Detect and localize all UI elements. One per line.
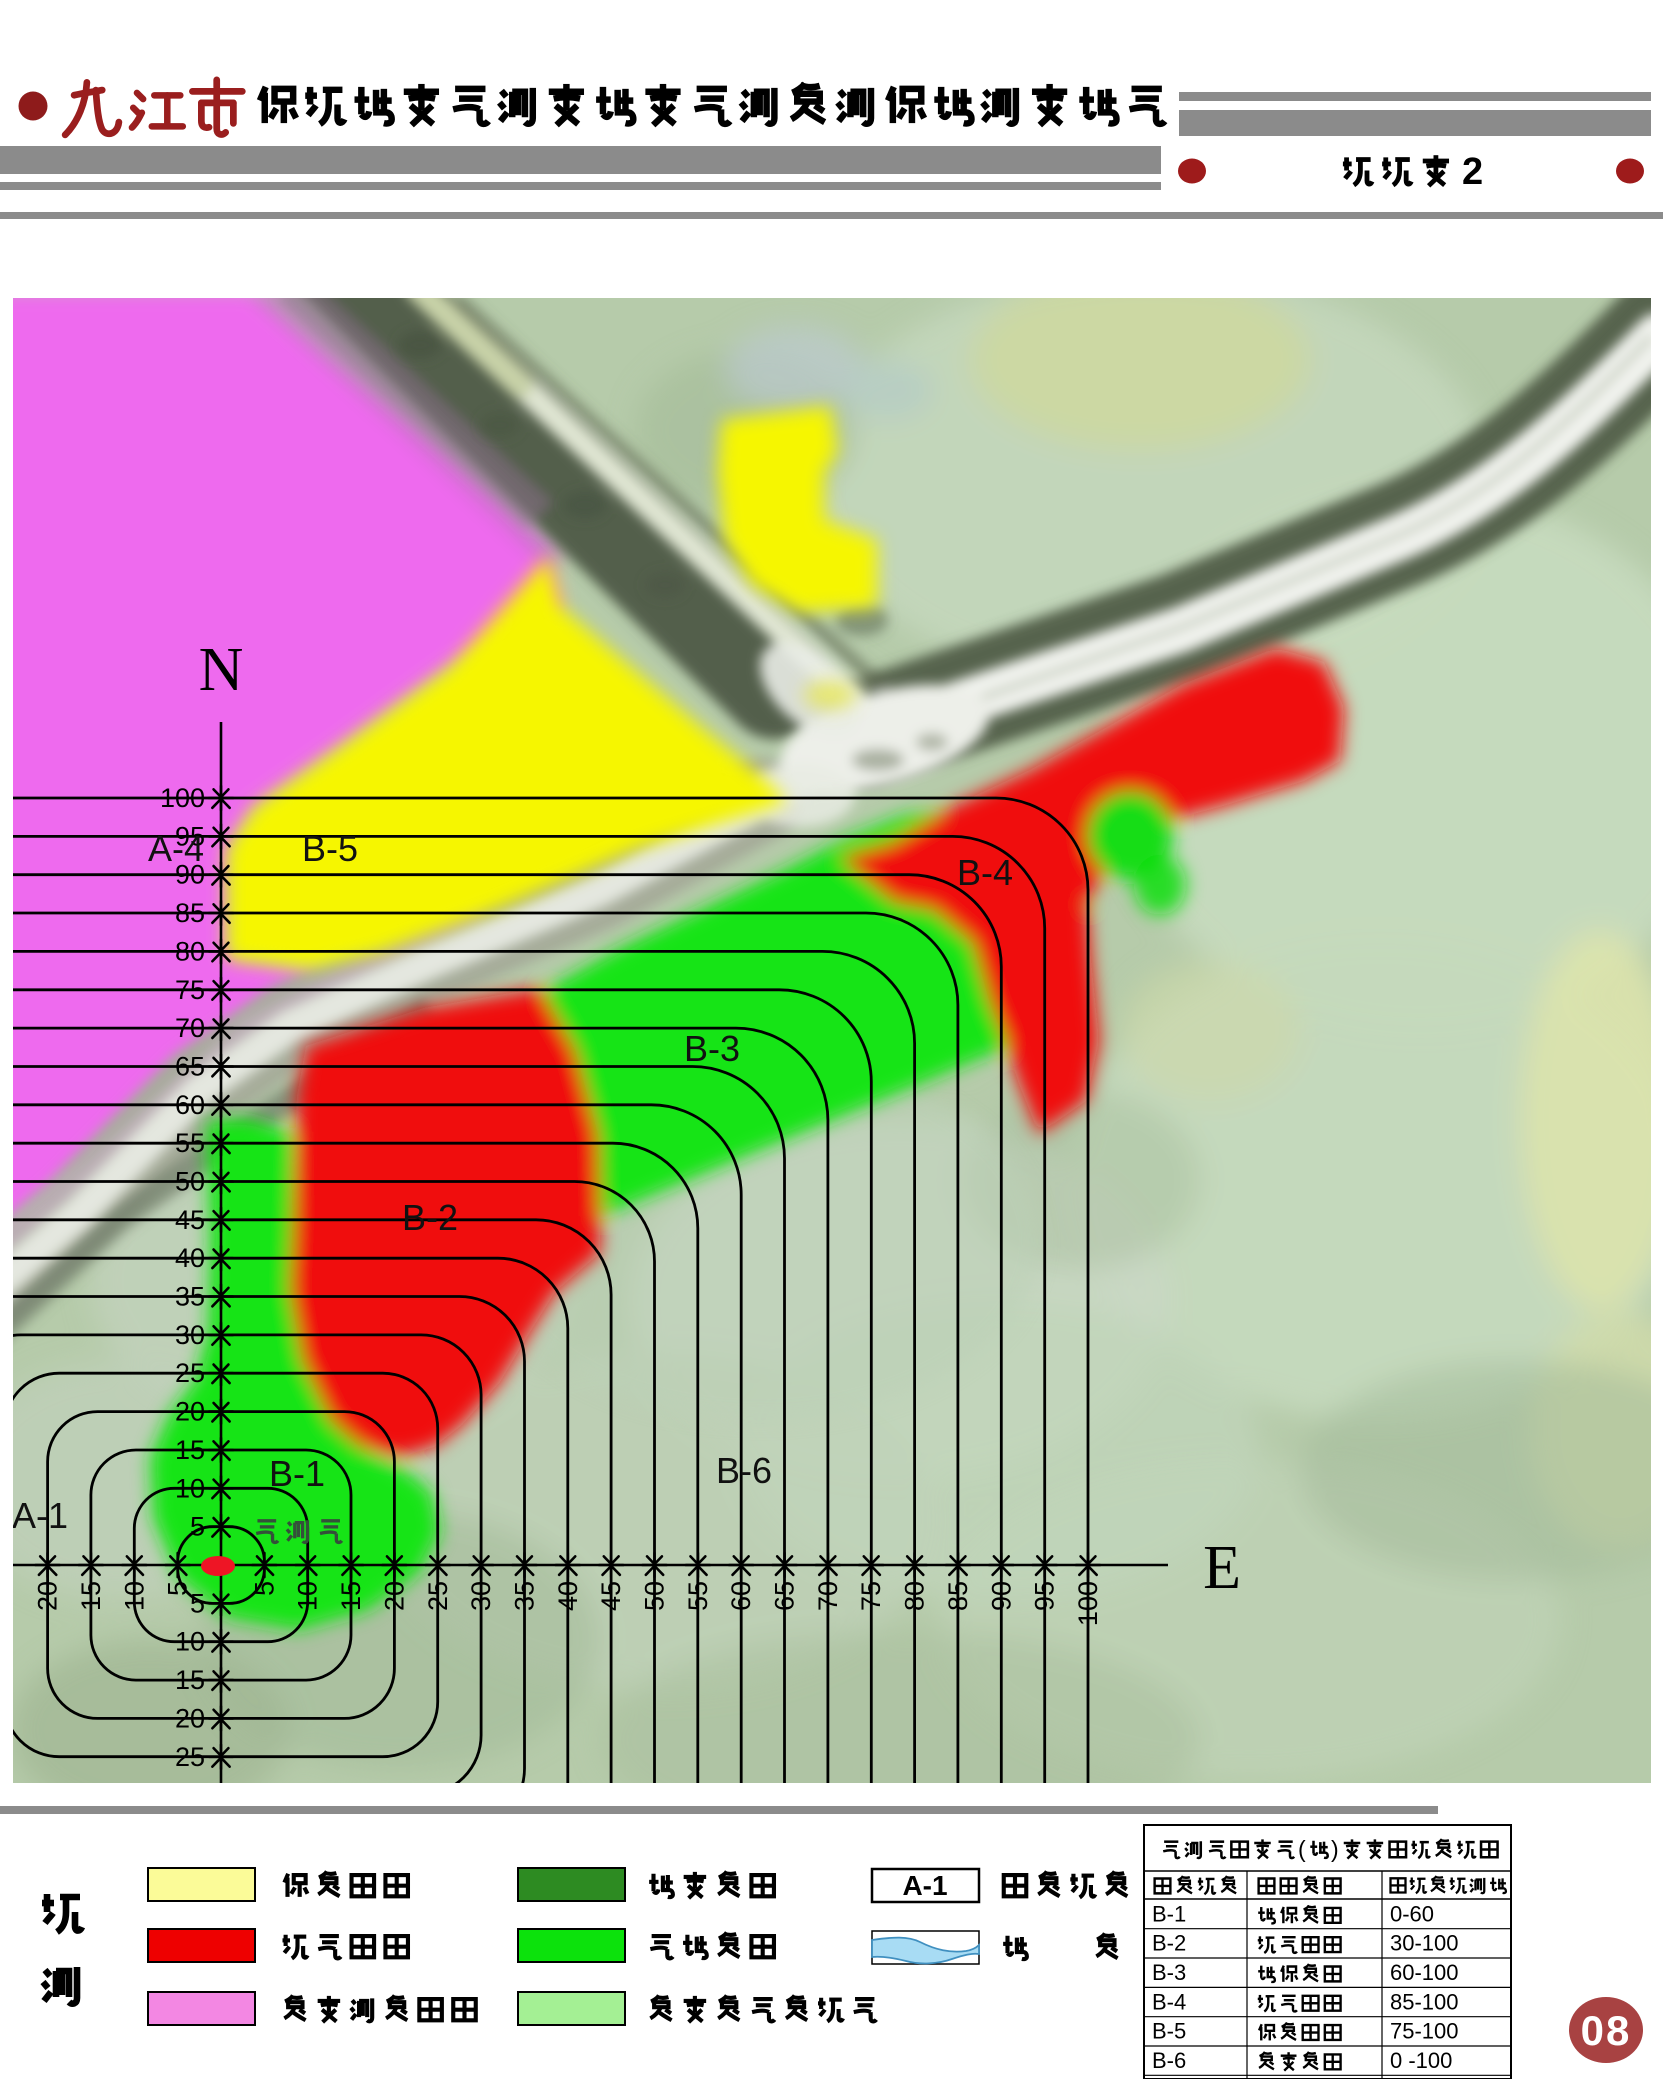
svg-text:55: 55 <box>683 1581 713 1611</box>
svg-text:80: 80 <box>900 1581 930 1611</box>
svg-text:40: 40 <box>553 1581 583 1611</box>
svg-text:75-100: 75-100 <box>1390 2019 1459 2044</box>
svg-text:20: 20 <box>33 1581 63 1611</box>
svg-text:95: 95 <box>1030 1581 1060 1611</box>
svg-text:25: 25 <box>175 1358 205 1388</box>
svg-text:85-100: 85-100 <box>1390 1989 1459 2014</box>
svg-text:B-6: B-6 <box>716 1450 772 1491</box>
svg-text:30-100: 30-100 <box>1390 1931 1459 1956</box>
svg-text:50: 50 <box>175 1167 205 1197</box>
svg-text:10: 10 <box>175 1473 205 1503</box>
svg-text:90: 90 <box>986 1581 1016 1611</box>
svg-text:0-60: 0-60 <box>1390 1901 1434 1926</box>
svg-text:B-3: B-3 <box>684 1028 740 1069</box>
svg-text:70: 70 <box>175 1013 205 1043</box>
svg-text:5: 5 <box>249 1581 279 1596</box>
svg-text:5: 5 <box>190 1512 205 1542</box>
svg-text:70: 70 <box>813 1581 843 1611</box>
svg-text:B-5: B-5 <box>1152 2019 1186 2044</box>
svg-text:B-4: B-4 <box>957 852 1013 893</box>
svg-text:60-100: 60-100 <box>1390 1960 1459 1985</box>
svg-text:35: 35 <box>510 1581 540 1611</box>
svg-text:): ) <box>1331 1836 1339 1862</box>
svg-text:5: 5 <box>163 1581 193 1596</box>
svg-text:B-6: B-6 <box>1152 2048 1186 2073</box>
svg-text:85: 85 <box>175 898 205 928</box>
svg-text:(: ( <box>1298 1836 1306 1862</box>
svg-text:60: 60 <box>726 1581 756 1611</box>
svg-text:75: 75 <box>175 975 205 1005</box>
svg-text:100: 100 <box>160 783 205 813</box>
svg-text:85: 85 <box>943 1581 973 1611</box>
svg-text:B-2: B-2 <box>402 1197 458 1238</box>
svg-text:B-4: B-4 <box>1152 1989 1186 2014</box>
svg-text:50: 50 <box>640 1581 670 1611</box>
svg-text:20: 20 <box>379 1581 409 1611</box>
svg-text:A-1: A-1 <box>12 1495 68 1536</box>
svg-text:45: 45 <box>175 1205 205 1235</box>
svg-text:80: 80 <box>175 936 205 966</box>
svg-text:65: 65 <box>175 1052 205 1082</box>
svg-text:B-1: B-1 <box>1152 1901 1186 1926</box>
svg-text:10: 10 <box>175 1627 205 1657</box>
svg-text:60: 60 <box>175 1090 205 1120</box>
svg-text:0 -100: 0 -100 <box>1390 2048 1452 2073</box>
svg-text:2: 2 <box>1462 151 1483 193</box>
svg-text:15: 15 <box>336 1581 366 1611</box>
svg-text:55: 55 <box>175 1128 205 1158</box>
svg-text:15: 15 <box>175 1665 205 1695</box>
svg-text:100: 100 <box>1073 1581 1103 1626</box>
svg-text:15: 15 <box>76 1581 106 1611</box>
svg-text:25: 25 <box>175 1742 205 1772</box>
svg-text:B-3: B-3 <box>1152 1960 1186 1985</box>
svg-text:40: 40 <box>175 1243 205 1273</box>
svg-text:10: 10 <box>293 1581 323 1611</box>
svg-text:10: 10 <box>119 1581 149 1611</box>
svg-text:B-2: B-2 <box>1152 1931 1186 1956</box>
svg-text:30: 30 <box>466 1581 496 1611</box>
svg-text:A-4: A-4 <box>148 828 204 869</box>
svg-text:A-1: A-1 <box>902 1870 947 1901</box>
svg-text:30: 30 <box>175 1320 205 1350</box>
svg-text:75: 75 <box>856 1581 886 1611</box>
svg-text:20: 20 <box>175 1703 205 1733</box>
svg-text:08: 08 <box>1581 2007 1632 2054</box>
svg-text:65: 65 <box>770 1581 800 1611</box>
svg-text:E: E <box>1203 1534 1241 1602</box>
svg-text:B-5: B-5 <box>302 828 358 869</box>
svg-text:45: 45 <box>596 1581 626 1611</box>
svg-text:25: 25 <box>423 1581 453 1611</box>
svg-text:B-1: B-1 <box>269 1453 325 1494</box>
svg-text:20: 20 <box>175 1397 205 1427</box>
svg-text:N: N <box>199 636 244 704</box>
svg-text:35: 35 <box>175 1282 205 1312</box>
svg-text:15: 15 <box>175 1435 205 1465</box>
